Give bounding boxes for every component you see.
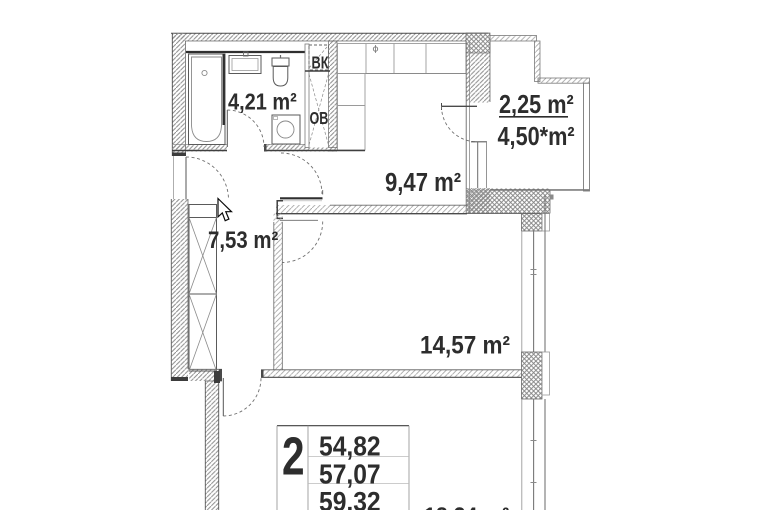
svg-text:4,21 m²: 4,21 m²	[228, 88, 297, 115]
svg-text:14,57 m²: 14,57 m²	[420, 331, 510, 359]
svg-text:ВК: ВК	[312, 53, 329, 73]
svg-text:ОВ: ОВ	[310, 109, 329, 129]
svg-text:59,32: 59,32	[319, 486, 381, 510]
svg-text:18,34 m²: 18,34 m²	[424, 502, 510, 510]
svg-text:9,47 m²: 9,47 m²	[385, 168, 461, 197]
svg-text:2: 2	[282, 427, 305, 487]
svg-text:2,25 m²: 2,25 m²	[499, 91, 574, 119]
svg-text:4,50*m²: 4,50*m²	[498, 123, 575, 151]
svg-text:7,53 m²: 7,53 m²	[208, 226, 278, 253]
